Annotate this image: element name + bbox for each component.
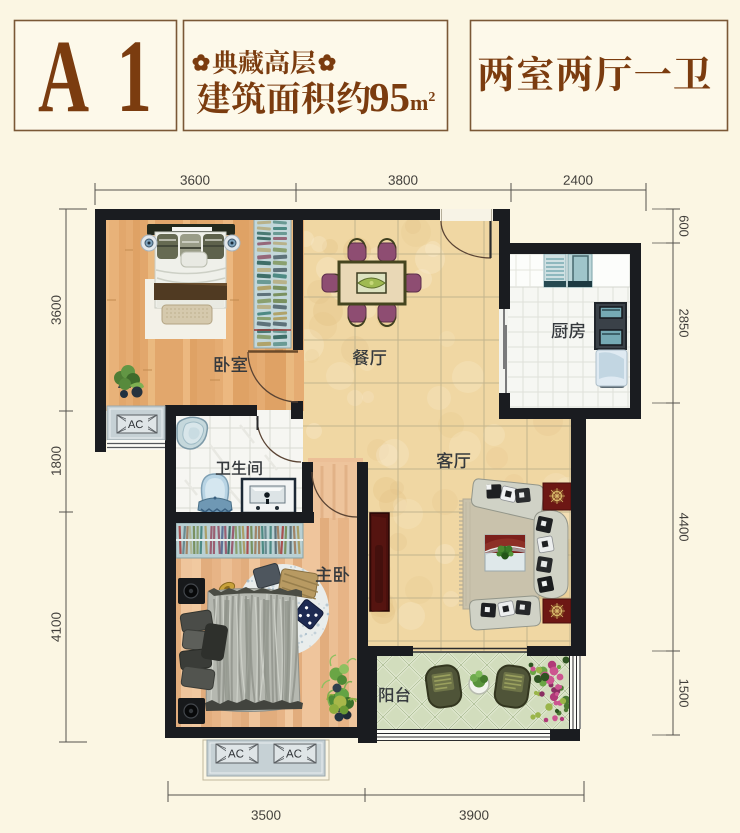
svg-text:A 1: A 1 xyxy=(38,20,159,135)
svg-text:95: 95 xyxy=(369,74,410,120)
